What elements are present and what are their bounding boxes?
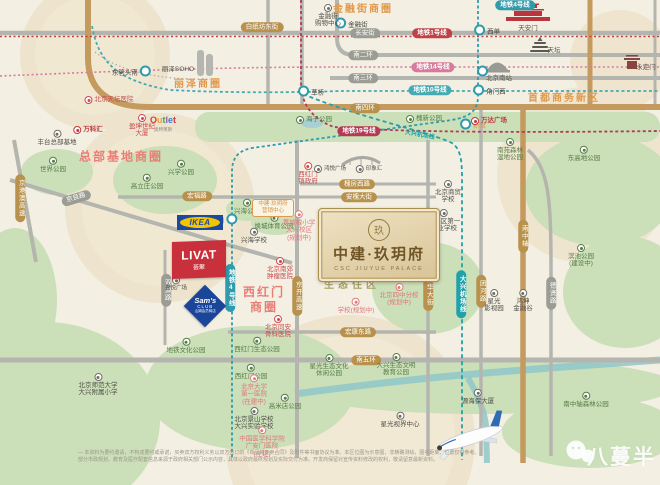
map-poi: 鸿坤 金融谷 xyxy=(513,289,533,313)
metro-station-label: 东管头南 xyxy=(112,66,138,76)
metro-station: 角门西 xyxy=(473,85,506,96)
metro-station-icon xyxy=(140,66,151,77)
poi-label: 高米店公园 xyxy=(269,403,302,410)
map-poi: 北京师范大学 大兴附属小学 xyxy=(79,373,118,397)
metro-station-icon xyxy=(298,86,309,97)
map-poi: 丰台总部基地 xyxy=(38,130,77,146)
hospital-icon xyxy=(138,114,146,122)
park-icon xyxy=(243,199,251,207)
park-icon xyxy=(392,353,400,361)
poi-label: 鸿悦广场 xyxy=(324,166,346,172)
sales-center-box: 中建·玖玥府 营销中心 xyxy=(252,199,294,217)
map-poi: 万科汇 xyxy=(73,126,103,134)
park-icon xyxy=(580,146,588,154)
disclaimer-line-1: — 本资料为要约邀请，不构成要约或承诺，买卖双方权利义务以双方签订的《商品房买卖… xyxy=(78,450,590,457)
poi-label: 源海保大厦 xyxy=(462,398,495,405)
poi-label: 西红门 镇政府 xyxy=(298,171,318,186)
location-map: 金融街商圈丽泽商圈首都商务新区总部基地商圈西红门 商圈生态住区长安街南二环南三环… xyxy=(0,0,660,485)
map-poi: 金融街 购物中心 xyxy=(315,4,341,28)
map-poi: 印象汇 xyxy=(356,165,383,173)
road-name-pill: 白纸坊东街 xyxy=(241,22,284,32)
poi-label: 南苑森林 湿地公园 xyxy=(497,147,523,162)
poi-label: 万达广场 xyxy=(481,117,507,124)
hospital-icon xyxy=(304,162,312,170)
metro-line-pill: 地铁4号线 xyxy=(225,264,235,312)
sams-subtext: 山姆会员商店 xyxy=(194,311,216,315)
business-zone-label: 丽泽商圈 xyxy=(174,79,222,92)
poi-label: 北京师范大学 大兴附属小学 xyxy=(79,382,118,397)
poi-label: 北京大学 第一医院 (在建中) xyxy=(241,383,267,405)
property-name: 中建·玖玥府 xyxy=(333,243,425,264)
business-zone-label: 西红门 商圈 xyxy=(243,285,285,315)
map-poi: 南苑森林 湿地公园 xyxy=(497,138,523,162)
poi-icon xyxy=(94,373,102,381)
map-poi: 北京商贸 学校 xyxy=(435,180,461,204)
metro-station: 草桥 xyxy=(298,86,324,97)
poi-icon xyxy=(73,126,81,134)
metro-line-pill: 地铁19号线 xyxy=(337,126,380,136)
road-name-pill: 德贤路 xyxy=(546,277,556,310)
hospital-icon xyxy=(258,426,266,434)
road-name-pill: 南中轴 xyxy=(518,220,528,253)
ikea-text: IKEA xyxy=(189,218,210,227)
park-icon xyxy=(296,116,304,124)
map-poi: 北京同安 骨科医院 xyxy=(265,315,291,339)
poi-icon xyxy=(396,412,404,420)
road-name-pill: 安槐大街 xyxy=(341,192,377,202)
poi-label: 金融街 购物中心 xyxy=(315,13,341,28)
map-poi: 海子公园 xyxy=(296,116,332,124)
poi-label: 北京天坛医院 xyxy=(95,96,134,103)
poi-label: 兴海学校 xyxy=(241,237,267,244)
metro-station-label: 西单 xyxy=(487,25,500,35)
poi-label: 学校(规划中) xyxy=(338,307,375,314)
poi-label: 丰台总部基地 xyxy=(38,139,77,146)
livat-logo: LIVAT 荟聚 xyxy=(172,240,226,279)
map-poi: 世界公园 xyxy=(40,157,66,173)
road-name-pill: 京港澳高速 xyxy=(15,174,25,222)
livat-text: LIVAT xyxy=(181,247,216,262)
road-name-pill: 南二环 xyxy=(348,50,378,60)
outlet-logo: Outlet 奥特莱斯 xyxy=(150,111,176,133)
landmark-label: 天坛 xyxy=(548,44,561,54)
poi-label: 世界公园 xyxy=(40,166,66,173)
road-name-pill: 京良路 xyxy=(61,189,92,207)
livat-subtext: 荟聚 xyxy=(193,262,205,271)
poi-label: 嘉悦广场 xyxy=(165,285,187,291)
business-zone-label: 首都商务新区 xyxy=(528,93,600,106)
poi-label: 北京商贸 学校 xyxy=(435,189,461,204)
metro-station-label: 角门西 xyxy=(486,85,506,95)
poi-icon xyxy=(250,407,258,415)
outlet-subtext: 奥特莱斯 xyxy=(150,128,176,133)
poi-label: 高立庄公园 xyxy=(131,183,164,190)
poi-icon xyxy=(444,180,452,188)
poi-label: 东高地公园 xyxy=(568,155,601,162)
hospital-icon xyxy=(352,298,360,306)
poi-label: 北京同安 骨科医院 xyxy=(265,324,291,339)
poi-label: 槐新公园 xyxy=(416,115,442,122)
map-poi: 北京四中分校 (规划中) xyxy=(380,283,419,307)
metro-line-pill: 地铁10号线 xyxy=(408,85,451,95)
park-icon xyxy=(582,392,590,400)
poi-icon xyxy=(490,289,498,297)
road-name-pill: 宏康东路 xyxy=(340,327,376,337)
poi-label: 南中轴森林公园 xyxy=(563,401,609,408)
park-icon xyxy=(325,354,333,362)
poi-label: 星光视界中心 xyxy=(381,421,420,428)
business-zone-label: 总部基地商圈 xyxy=(79,150,163,165)
disclaimer-line-2: 部分市政规划、教育及医疗配套信息来源于政府相关部门公示内容，具体以政府最终规划及… xyxy=(78,457,590,464)
property-seal-icon: 玖 xyxy=(368,219,390,241)
map-poi: 鸿悦广场 xyxy=(314,165,346,173)
map-poi: 高米店公园 xyxy=(269,394,302,410)
metro-station: 西单 xyxy=(474,25,500,36)
poi-icon xyxy=(250,228,258,236)
park-icon xyxy=(182,338,190,346)
poi-label: 西红门生态公园 xyxy=(234,346,280,353)
map-poi: 万达广场 xyxy=(471,117,507,125)
poi-icon xyxy=(471,117,479,125)
metro-line-pill: 地铁14号线 xyxy=(411,62,454,72)
map-poi: 星光视界中心 xyxy=(381,412,420,428)
map-poi: 兴海学校 xyxy=(241,228,267,244)
metro-station-icon xyxy=(473,85,484,96)
map-poi: 地铁文化公园 xyxy=(167,338,206,354)
landmark-label: 天安门 xyxy=(518,22,538,32)
road-name-pill: 南四环 xyxy=(350,103,380,113)
metro-line-pill: 地铁4号线 xyxy=(495,0,535,10)
landmark-label: 永定门 xyxy=(636,61,656,71)
road-name-pill: 京开高速 xyxy=(292,276,302,316)
hospital-icon xyxy=(276,257,284,265)
park-icon xyxy=(406,115,414,123)
map-poi: 学校(规划中) xyxy=(338,298,375,314)
poi-icon xyxy=(356,165,364,173)
metro-station-label: 金融街 xyxy=(348,18,368,28)
park-icon xyxy=(247,364,255,372)
road-name-pill: 宏福路 xyxy=(182,191,212,201)
poi-label: 星光 影视园 xyxy=(484,298,504,313)
map-poi: 南中轴森林公园 xyxy=(563,392,609,408)
metro-line-text: 大兴机场线 xyxy=(404,127,435,141)
poi-label: 大兴生态文明 教育公园 xyxy=(377,362,416,377)
poi-icon xyxy=(324,4,332,12)
hospital-icon xyxy=(85,96,93,104)
poi-icon xyxy=(440,209,448,217)
outlet-text: Outlet xyxy=(150,115,176,125)
poi-label: 兴学公园 xyxy=(168,169,194,176)
metro-station-icon xyxy=(474,25,485,36)
poi-label: 北京四中分校 (规划中) xyxy=(380,292,419,307)
map-poi: 西红门 镇政府 xyxy=(298,162,318,186)
park-icon xyxy=(253,337,261,345)
map-poi: 滨池公园 (建设中) xyxy=(568,244,594,268)
business-zone-label: 金融街商圈 xyxy=(333,4,393,17)
landmark-label: 北京南站 xyxy=(486,72,512,82)
metro-line-pill: 大兴机场线 xyxy=(456,270,466,318)
park-icon xyxy=(177,160,185,168)
park-icon xyxy=(281,394,289,402)
map-poi: 高立庄公园 xyxy=(131,174,164,190)
poi-icon xyxy=(519,289,527,297)
park-icon xyxy=(143,174,151,182)
map-poi: 星光生态文化 休闲公园 xyxy=(310,354,349,378)
poi-label: 北京南郊 肿瘤医院 xyxy=(267,266,293,281)
property-name-en: CSC JIUYUE PALACE xyxy=(334,266,424,272)
metro-station-icon xyxy=(460,119,471,130)
poi-label: 滨池公园 (建设中) xyxy=(568,253,594,268)
property-card: 玖 中建·玖玥府 CSC JIUYUE PALACE xyxy=(318,208,440,282)
map-poi: 兴学公园 xyxy=(168,160,194,176)
poi-label: 鸿坤 金融谷 xyxy=(513,298,533,313)
map-poi: 北京大学 第一医院 (在建中) xyxy=(241,374,267,405)
landmark-label: 丽泽SOHO xyxy=(162,63,194,73)
poi-label: 黄城根小学 大兴校区 (规划中) xyxy=(283,219,316,241)
map-poi: 东高地公园 xyxy=(568,146,601,162)
metro-station: 东管头南 xyxy=(112,66,151,77)
poi-label: 海子公园 xyxy=(306,116,332,123)
hospital-icon xyxy=(274,315,282,323)
road-name-pill: 槐房西路 xyxy=(339,179,375,189)
metro-station-label: 草桥 xyxy=(311,86,324,96)
ikea-oval: IKEA xyxy=(180,217,220,228)
poi-label: 地铁文化公园 xyxy=(167,347,206,354)
hospital-icon xyxy=(395,283,403,291)
ikea-logo: IKEA xyxy=(177,215,223,230)
hospital-icon xyxy=(250,374,258,382)
poi-icon xyxy=(53,130,61,138)
map-poi: 西红门生态公园 xyxy=(234,337,280,353)
road-name-pill: 长安街 xyxy=(350,28,380,38)
map-poi: 槐新公园 xyxy=(406,115,442,123)
map-poi: 北京南郊 肿瘤医院 xyxy=(267,257,293,281)
hospital-icon xyxy=(295,210,303,218)
park-icon xyxy=(577,244,585,252)
map-poi: 星光 影视园 xyxy=(484,289,504,313)
watermark: 八蔓半 xyxy=(587,441,656,471)
road-name-pill: 南三环 xyxy=(348,73,378,83)
map-poi: 北京天坛医院 xyxy=(85,96,134,104)
poi-label: 万科汇 xyxy=(83,126,103,133)
park-icon xyxy=(49,157,57,165)
poi-icon xyxy=(474,389,482,397)
park-icon xyxy=(506,138,514,146)
map-poi: 大兴生态文明 教育公园 xyxy=(377,353,416,377)
poi-label: 星光生态文化 休闲公园 xyxy=(310,363,349,378)
watermark-text: 八蔓半 xyxy=(587,441,656,471)
metro-line-pill: 地铁1号线 xyxy=(412,28,452,38)
poi-label: 印象汇 xyxy=(366,166,383,172)
map-poi: 源海保大厦 xyxy=(462,389,495,405)
